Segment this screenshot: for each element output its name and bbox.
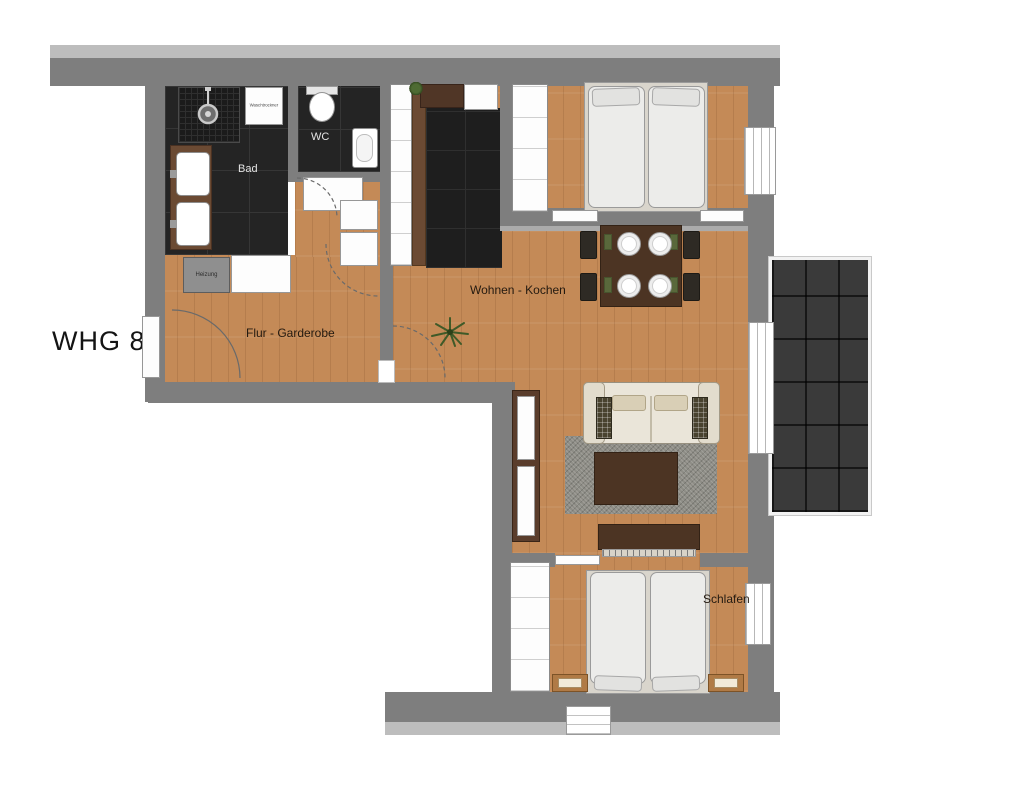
pillow (594, 675, 642, 692)
tv-lowboard (598, 524, 700, 550)
washer-dryer-label: Waschtrockner (250, 104, 279, 108)
pillow (652, 87, 701, 107)
room-label-wohnen: Wohnen - Kochen (470, 283, 566, 297)
nightstand-drawer (714, 678, 738, 688)
room-label-bad: Bad (238, 163, 258, 175)
dining-chair (683, 273, 700, 301)
balcony-tiles (772, 260, 868, 512)
room-label-flur: Flur - Garderobe (246, 326, 335, 340)
sofa-cushion (612, 395, 646, 411)
sofa-cushion (654, 395, 688, 411)
bedroom1-sill-cabinet (552, 210, 598, 222)
bathroom-sink-2 (176, 202, 210, 246)
kitchen-counter (390, 84, 412, 266)
lowboard-vent (602, 549, 696, 557)
kitchen-cabinet (420, 84, 464, 108)
bottom-window (566, 706, 611, 735)
heater-label: Heizung (195, 272, 217, 278)
unit-label: WHG 8 (52, 326, 146, 357)
wall-top-outer-strip (50, 45, 780, 58)
sofa-pillow (692, 397, 708, 439)
bedroom2-mattress (590, 572, 646, 684)
nightstand-drawer (558, 678, 582, 688)
bedroom2-mattress (650, 572, 706, 684)
wall-bedroom2-top-right (700, 553, 748, 567)
room-label-wc: WC (311, 131, 329, 143)
napkin (604, 277, 612, 293)
balcony-sliding-door (748, 322, 774, 454)
living-cabinet-panel (517, 396, 535, 460)
bathroom-sink-1 (176, 152, 210, 196)
entry-door (142, 316, 160, 378)
faucet-icon (170, 220, 177, 228)
plate (648, 232, 672, 256)
hall-cabinet (231, 255, 291, 293)
dining-chair (683, 231, 700, 259)
napkin (604, 234, 612, 250)
kitchen-floor (426, 108, 502, 268)
bedroom1-sill-cabinet (700, 210, 744, 222)
bedroom2-sill (555, 555, 600, 565)
toilet (309, 92, 335, 122)
wc-sink-basin (356, 134, 373, 162)
pillow (592, 87, 641, 107)
sofa-pillow (596, 397, 612, 439)
hall-living-doorway (378, 360, 395, 383)
plate (617, 274, 641, 298)
bedroom2-wardrobe (510, 562, 550, 692)
bedroom1-wardrobe (512, 84, 548, 212)
dining-chair (580, 231, 597, 259)
wall-living-left (492, 382, 512, 695)
bedroom1-window (744, 127, 776, 195)
plant-icon (409, 82, 423, 95)
plate (648, 274, 672, 298)
exterior-mask (380, 403, 492, 692)
living-cabinet-panel (517, 466, 535, 536)
washer-dryer: Waschtrockner (245, 87, 283, 125)
wardrobe-cabinet (340, 200, 378, 230)
dining-chair (580, 273, 597, 301)
shower (178, 87, 240, 143)
kitchen-counter-wood-edge (412, 84, 426, 266)
coffee-table (594, 452, 678, 505)
floor-plan: WHG 8 Waschtrockner Bad WC (0, 0, 1012, 789)
kitchen-cabinet-white (464, 84, 498, 110)
heater: Heizung (183, 257, 230, 293)
wall-hall-bottom (148, 382, 515, 403)
plate (617, 232, 641, 256)
pillow (652, 675, 700, 692)
faucet-icon (170, 170, 177, 178)
room-label-schlafen: Schlafen (703, 592, 750, 606)
wardrobe-cabinet (340, 232, 378, 266)
wall-bad-wc (288, 84, 298, 172)
sofa-seam (650, 396, 652, 442)
